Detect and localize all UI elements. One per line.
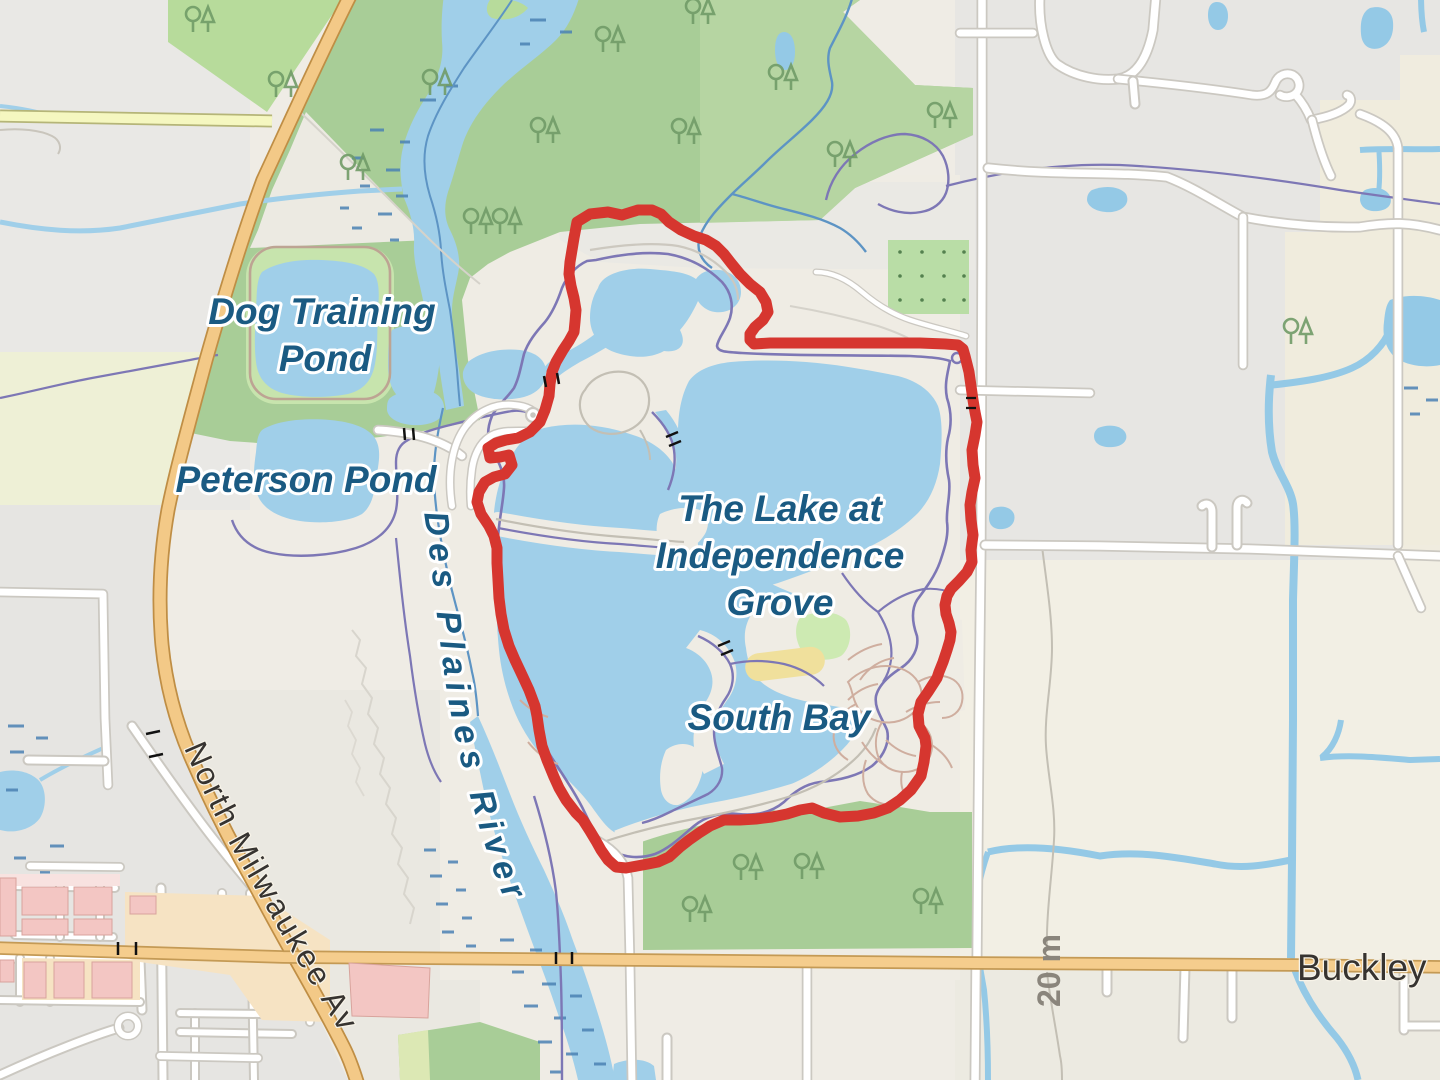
svg-text:The Lake at: The Lake at: [678, 488, 883, 529]
svg-text:Buckley: Buckley: [1297, 947, 1427, 988]
svg-text:20 m: 20 m: [1031, 934, 1067, 1007]
svg-text:Dog Training: Dog Training: [208, 291, 435, 332]
svg-text:Independence: Independence: [656, 535, 905, 576]
svg-text:Pond: Pond: [279, 338, 373, 379]
svg-text:South Bay: South Bay: [688, 697, 873, 738]
svg-text:Grove: Grove: [727, 582, 834, 623]
svg-text:Peterson Pond: Peterson Pond: [175, 459, 437, 500]
